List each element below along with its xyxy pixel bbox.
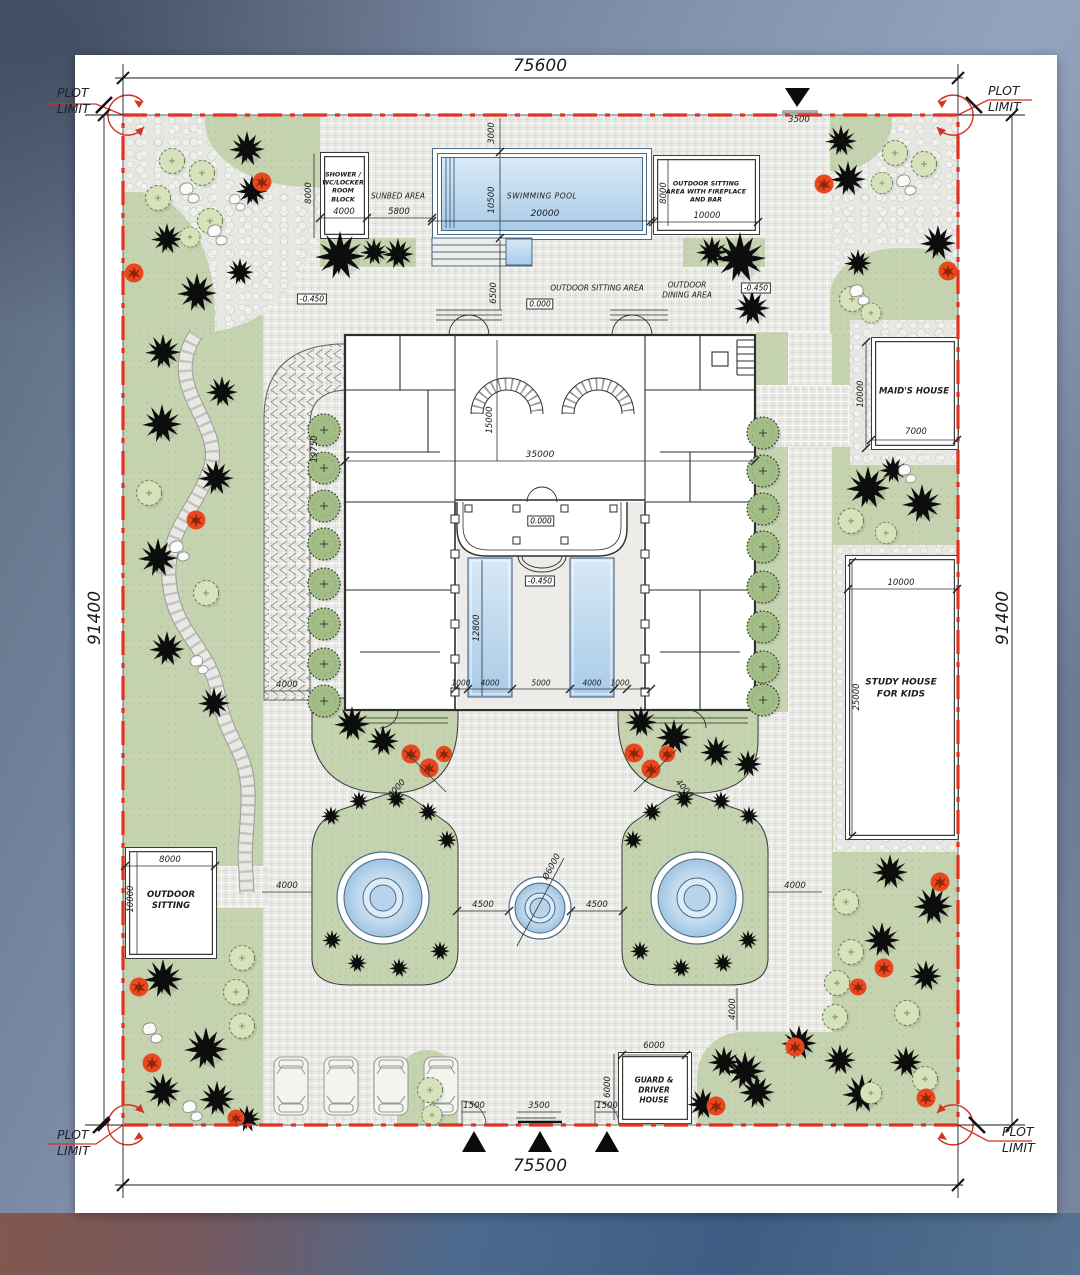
dim-pool-length: 20000 bbox=[531, 209, 560, 219]
slide-frame-bottom-band bbox=[0, 1213, 1080, 1275]
dim-top-gate: 3500 bbox=[788, 115, 810, 125]
label-fire-sitting: OUTDOOR SITTINGAREA WITH FIREPLACEAND BA… bbox=[666, 181, 746, 206]
label-maid-house: MAID'S HOUSE bbox=[879, 386, 949, 397]
dim-gate-main: 3500 bbox=[528, 1101, 550, 1111]
dim-guard-w: 6000 bbox=[643, 1041, 665, 1051]
dim-reflecting-pool: 12800 bbox=[472, 614, 482, 641]
dim-pool-offset: 3000 bbox=[487, 122, 497, 144]
dim-plot-top: 75600 bbox=[513, 56, 567, 76]
dim-court-gap: 6500 bbox=[489, 282, 499, 304]
plot-limit-label-bl: PLOTLIMIT bbox=[57, 1127, 90, 1160]
dim-court-row-2: 5000 bbox=[531, 679, 550, 688]
dim-gate-right: 1500 bbox=[596, 1101, 618, 1111]
dim-maid-w: 7000 bbox=[905, 427, 927, 437]
dim-study-h: 25000 bbox=[852, 683, 862, 710]
lawn-left-strip bbox=[123, 315, 263, 1125]
dim-sitting-connector: 4000 bbox=[276, 881, 298, 891]
level-zero-portico: 0.000 bbox=[527, 516, 554, 527]
plot-limit-label-br: PLOTLIMIT bbox=[1002, 1124, 1035, 1157]
label-outdoor-sitting-area: OUTDOOR SITTING AREA bbox=[550, 284, 644, 293]
label-outdoor-dining-1: OUTDOOR bbox=[668, 281, 707, 290]
dim-plot-left: 91400 bbox=[85, 591, 105, 645]
dim-court-row-1: 4000 bbox=[480, 679, 499, 688]
level-minus-courtyard: -0.450 bbox=[525, 576, 555, 587]
plot-limit-label-tr: PLOTLIMIT bbox=[988, 83, 1021, 116]
label-outdoor-sitting: OUTDOORSITTING bbox=[147, 890, 195, 912]
lawn-bottom-right bbox=[697, 1032, 958, 1125]
lawn-parking-arch bbox=[397, 1050, 458, 1125]
dim-plot-bottom: 75500 bbox=[513, 1156, 567, 1176]
dim-pool-width: 10500 bbox=[487, 186, 497, 213]
label-sunbed-area: SUNBED AREA bbox=[371, 192, 425, 201]
plot-limit-label-tl: PLOTLIMIT bbox=[57, 85, 90, 118]
dim-fire-w: 10000 bbox=[693, 211, 720, 221]
planting-bed-fire bbox=[683, 238, 765, 267]
dim-sitting-h: 10000 bbox=[126, 885, 136, 912]
dim-island-gap-right: 4500 bbox=[586, 900, 608, 910]
dim-court-row-4: 1000 bbox=[610, 679, 629, 688]
label-outdoor-dining-2: DINING AREA bbox=[662, 291, 712, 300]
level-minus-left: -0.450 bbox=[297, 294, 327, 305]
level-minus-right: -0.450 bbox=[741, 283, 771, 294]
label-study-house: STUDY HOUSEFOR KIDS bbox=[865, 677, 936, 700]
dim-sunbed: 5800 bbox=[388, 207, 410, 217]
dim-right-walk: 4000 bbox=[784, 881, 806, 891]
dim-study-w: 10000 bbox=[887, 578, 914, 588]
site-plan-sheet: 75600 75500 91400 91400 PLOTLIMIT PLOTLI… bbox=[0, 0, 1080, 1275]
dim-island-gap-left: 4500 bbox=[472, 900, 494, 910]
walkway-maid-connector bbox=[752, 385, 858, 447]
planting-bed-shower bbox=[320, 238, 416, 267]
label-shower-block: SHOWER /WC/LOCKER ROOMBLOCK bbox=[322, 172, 364, 205]
walkway-sitting-connector bbox=[213, 866, 269, 908]
dim-fire-h: 8000 bbox=[659, 182, 669, 204]
dim-pergola-length: 19750 bbox=[310, 435, 320, 462]
dim-shower-w: 4000 bbox=[333, 207, 355, 217]
dim-bottom-path: 4000 bbox=[728, 998, 738, 1020]
label-guard-house: GUARD &DRIVERHOUSE bbox=[635, 1075, 674, 1104]
dim-house-width: 35000 bbox=[526, 450, 555, 460]
label-swimming-pool: SWIMMING POOL bbox=[507, 192, 577, 201]
dim-hall-depth: 15000 bbox=[485, 406, 495, 433]
dim-pergola-width: 4000 bbox=[276, 680, 298, 690]
dim-court-row-0: 1000 bbox=[451, 679, 470, 688]
dim-plot-right: 91400 bbox=[993, 591, 1013, 645]
dim-gate-left: 1500 bbox=[463, 1101, 485, 1111]
dim-shower-h: 8000 bbox=[304, 182, 314, 204]
dim-court-row-3: 4000 bbox=[582, 679, 601, 688]
level-zero-terrace: 0.000 bbox=[526, 299, 553, 310]
dim-sitting-w: 8000 bbox=[159, 855, 181, 865]
dim-guard-h: 6000 bbox=[603, 1076, 613, 1098]
dim-maid-h: 10000 bbox=[856, 380, 866, 407]
